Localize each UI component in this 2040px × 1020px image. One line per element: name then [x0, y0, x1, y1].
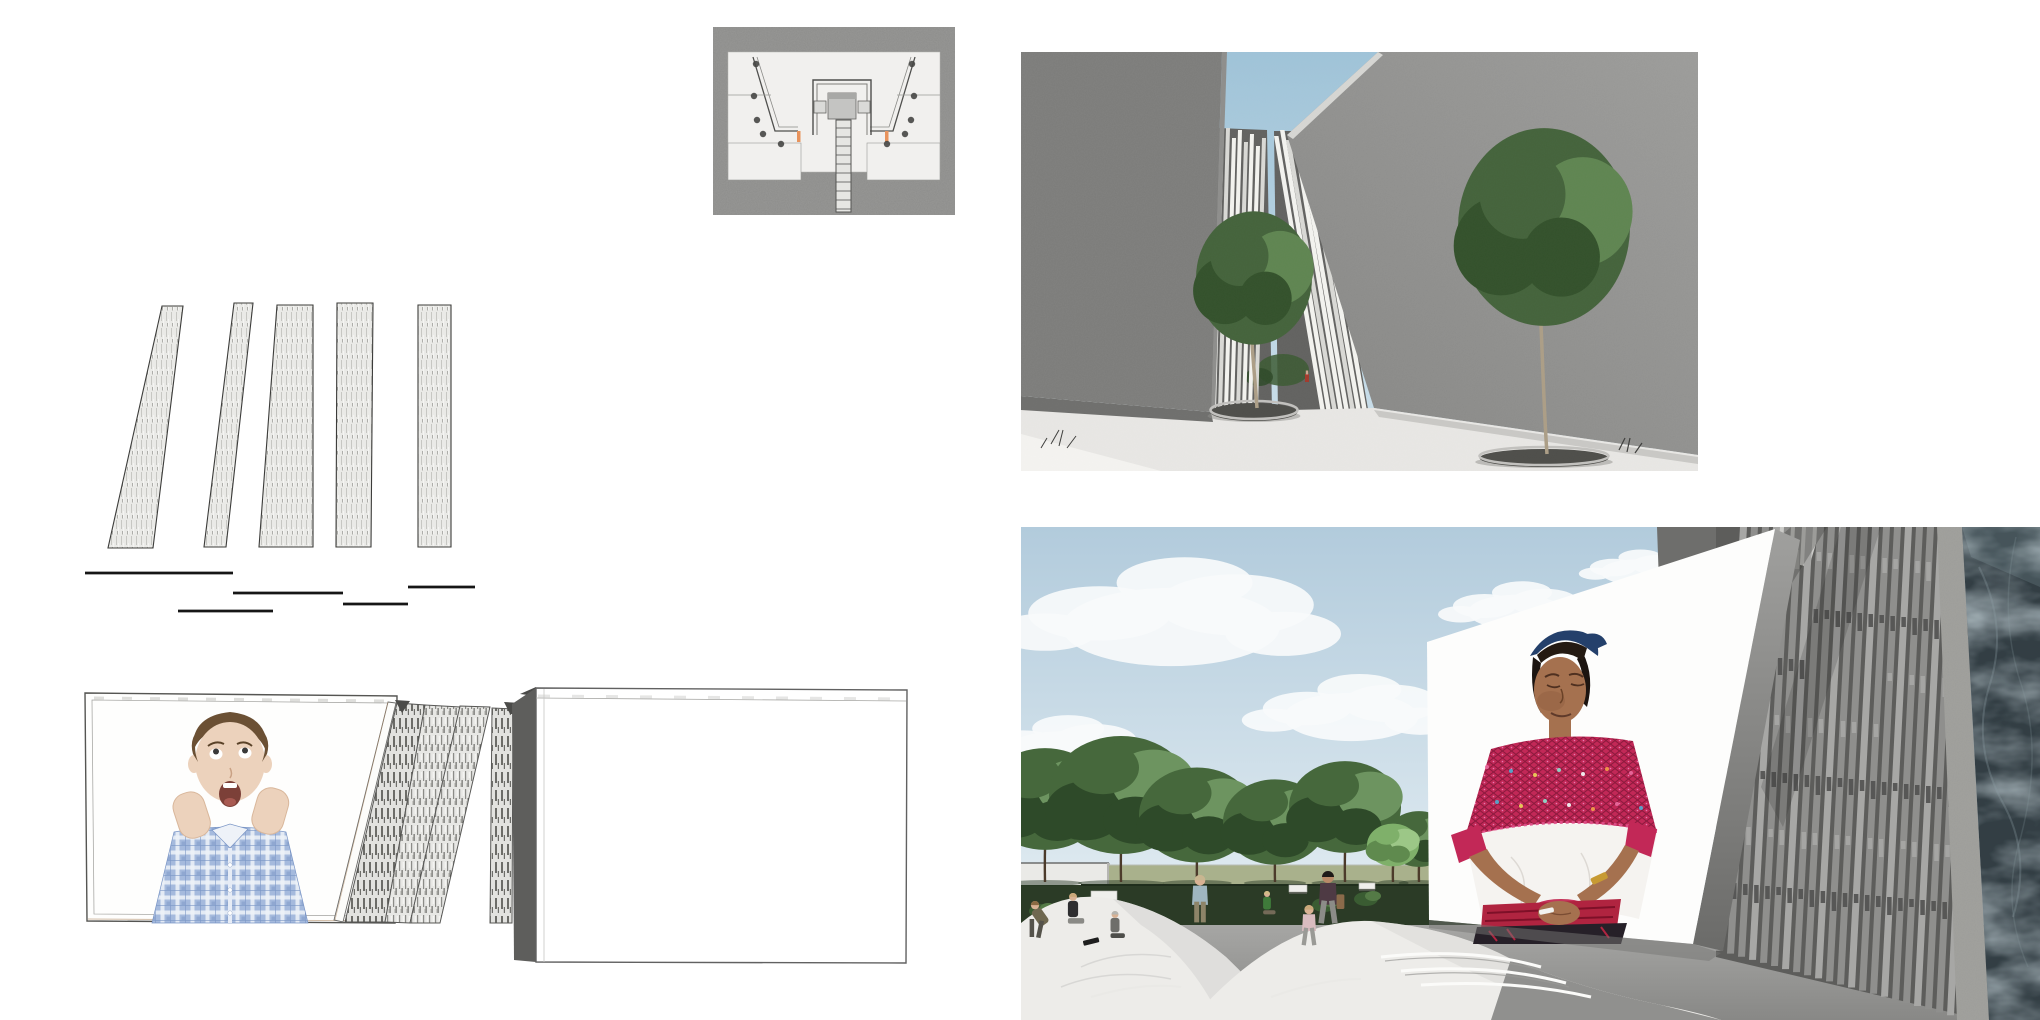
- screen-wall-elevation: [80, 680, 910, 970]
- slanted-panel: [108, 306, 183, 548]
- plaza-render: [1021, 527, 2040, 1020]
- plan-pier-right: [858, 101, 870, 113]
- bench: [1289, 885, 1307, 892]
- slanted-panels: [108, 303, 451, 548]
- courtyard-render: [1021, 52, 1698, 471]
- plan-pier-left: [814, 101, 826, 113]
- slanted-panel: [418, 305, 451, 547]
- plan-tree-dot: [909, 61, 915, 67]
- plan-tree-dot: [753, 61, 759, 67]
- plan-tree-dot: [778, 141, 784, 147]
- courtyard-svg: [1021, 52, 1698, 471]
- slanted-panel: [259, 305, 313, 547]
- plan-door-marker-right: [885, 131, 889, 142]
- panel-diagram-svg: [85, 295, 485, 625]
- plan-tree-dot: [754, 117, 760, 123]
- panel-elevation-diagram: [85, 295, 485, 625]
- plan-tree-dot: [902, 131, 908, 137]
- site-plan-drawing: [713, 27, 955, 215]
- plan-tree-dot: [908, 117, 914, 123]
- slanted-panel: [336, 303, 373, 547]
- plaza-svg: [1021, 527, 2040, 1020]
- plan-tree-dot: [911, 93, 917, 99]
- plan-screen-block-top: [828, 93, 856, 99]
- white-wall-volume: [512, 687, 907, 963]
- screen-elevation-svg: [80, 680, 910, 970]
- plan-room-left: [728, 143, 801, 180]
- bench: [1359, 883, 1375, 889]
- site-plan-svg: [713, 27, 955, 215]
- slanted-panel: [204, 303, 253, 547]
- plan-door-marker-left: [797, 131, 801, 142]
- plan-tree-dot: [760, 131, 766, 137]
- ground-lines: [85, 573, 475, 611]
- render-grain: [1021, 52, 1698, 471]
- plan-stair-run: [836, 120, 851, 212]
- plan-tree-dot: [884, 141, 890, 147]
- plan-tree-dot: [751, 93, 757, 99]
- plan-room-right: [867, 143, 940, 180]
